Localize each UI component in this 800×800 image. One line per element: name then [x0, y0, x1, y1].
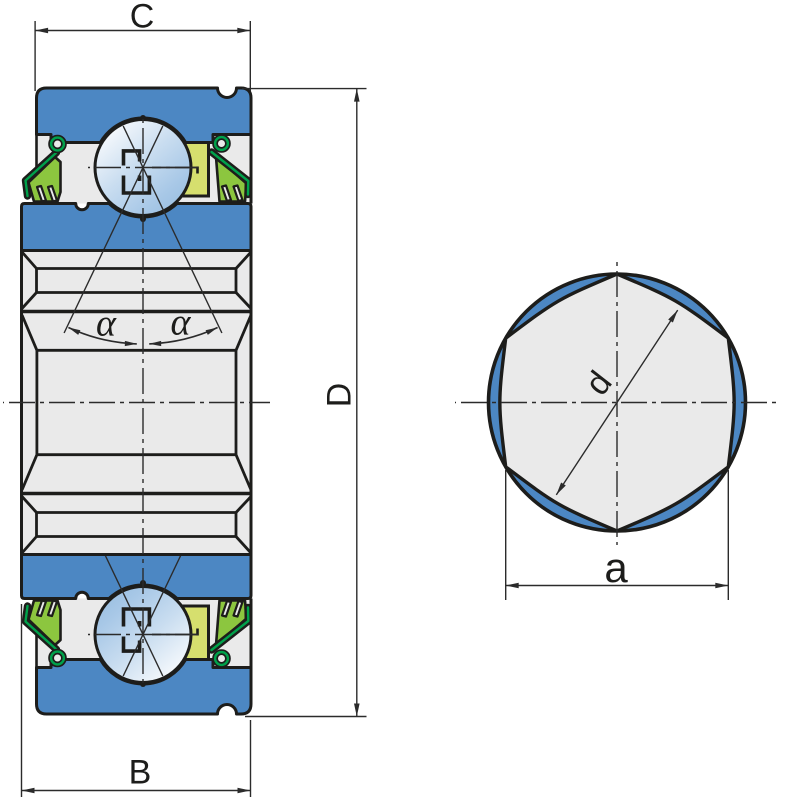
svg-text:C: C	[130, 0, 155, 36]
svg-text:B: B	[129, 754, 152, 792]
svg-text:α: α	[171, 302, 192, 344]
svg-text:D: D	[321, 383, 359, 408]
svg-text:α: α	[96, 303, 117, 345]
svg-text:a: a	[604, 544, 628, 591]
